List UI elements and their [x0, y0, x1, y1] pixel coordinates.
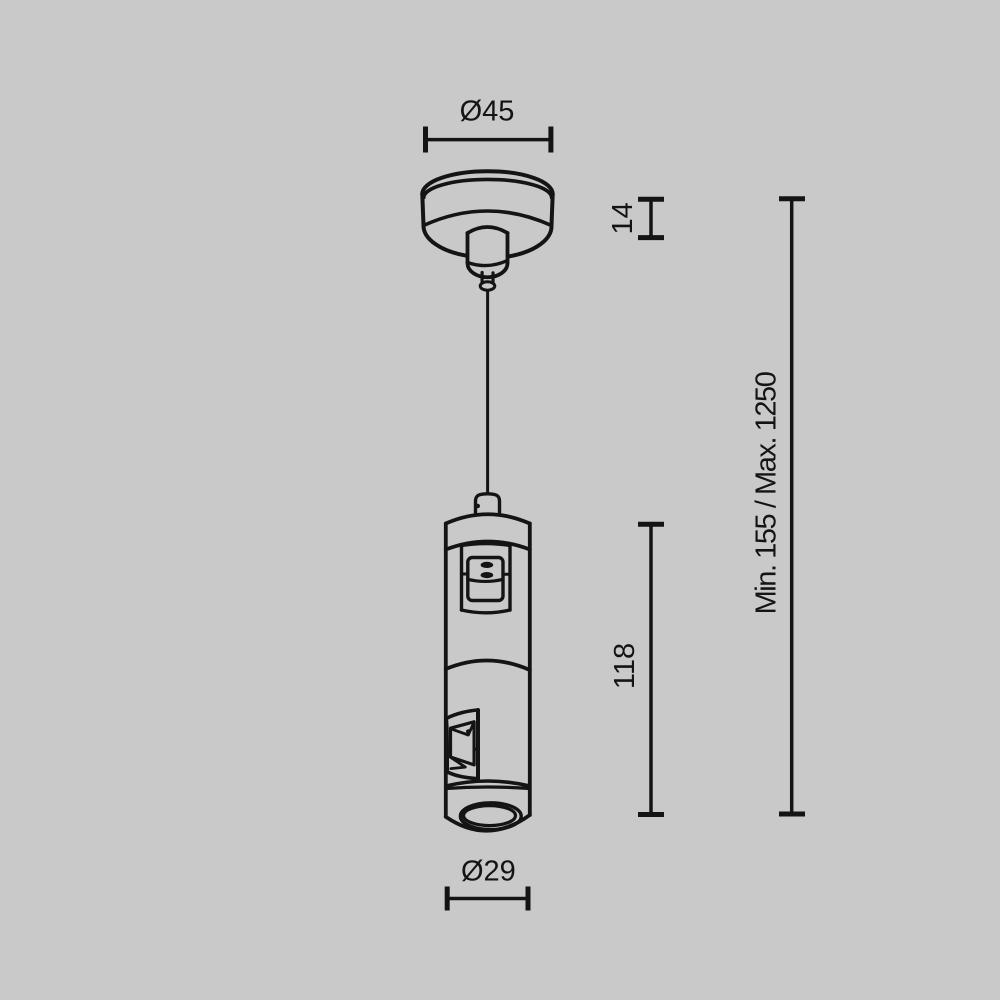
svg-text:Ø45: Ø45: [460, 96, 515, 128]
svg-text:Ø29: Ø29: [461, 856, 516, 888]
svg-text:Min. 155 / Max. 1250: Min. 155 / Max. 1250: [750, 372, 782, 614]
svg-text:118: 118: [609, 643, 641, 689]
svg-text:14: 14: [607, 202, 639, 234]
